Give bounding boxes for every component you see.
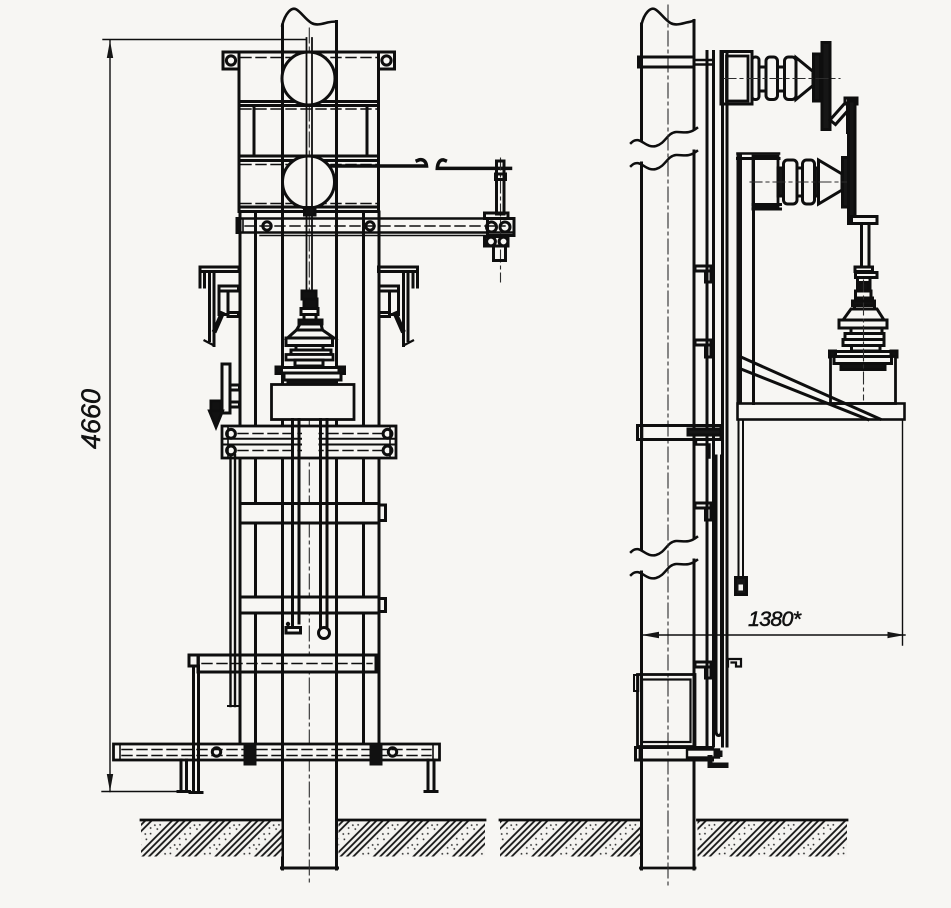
svg-text:1380*: 1380* [748, 607, 802, 631]
svg-text:4660: 4660 [76, 389, 106, 449]
